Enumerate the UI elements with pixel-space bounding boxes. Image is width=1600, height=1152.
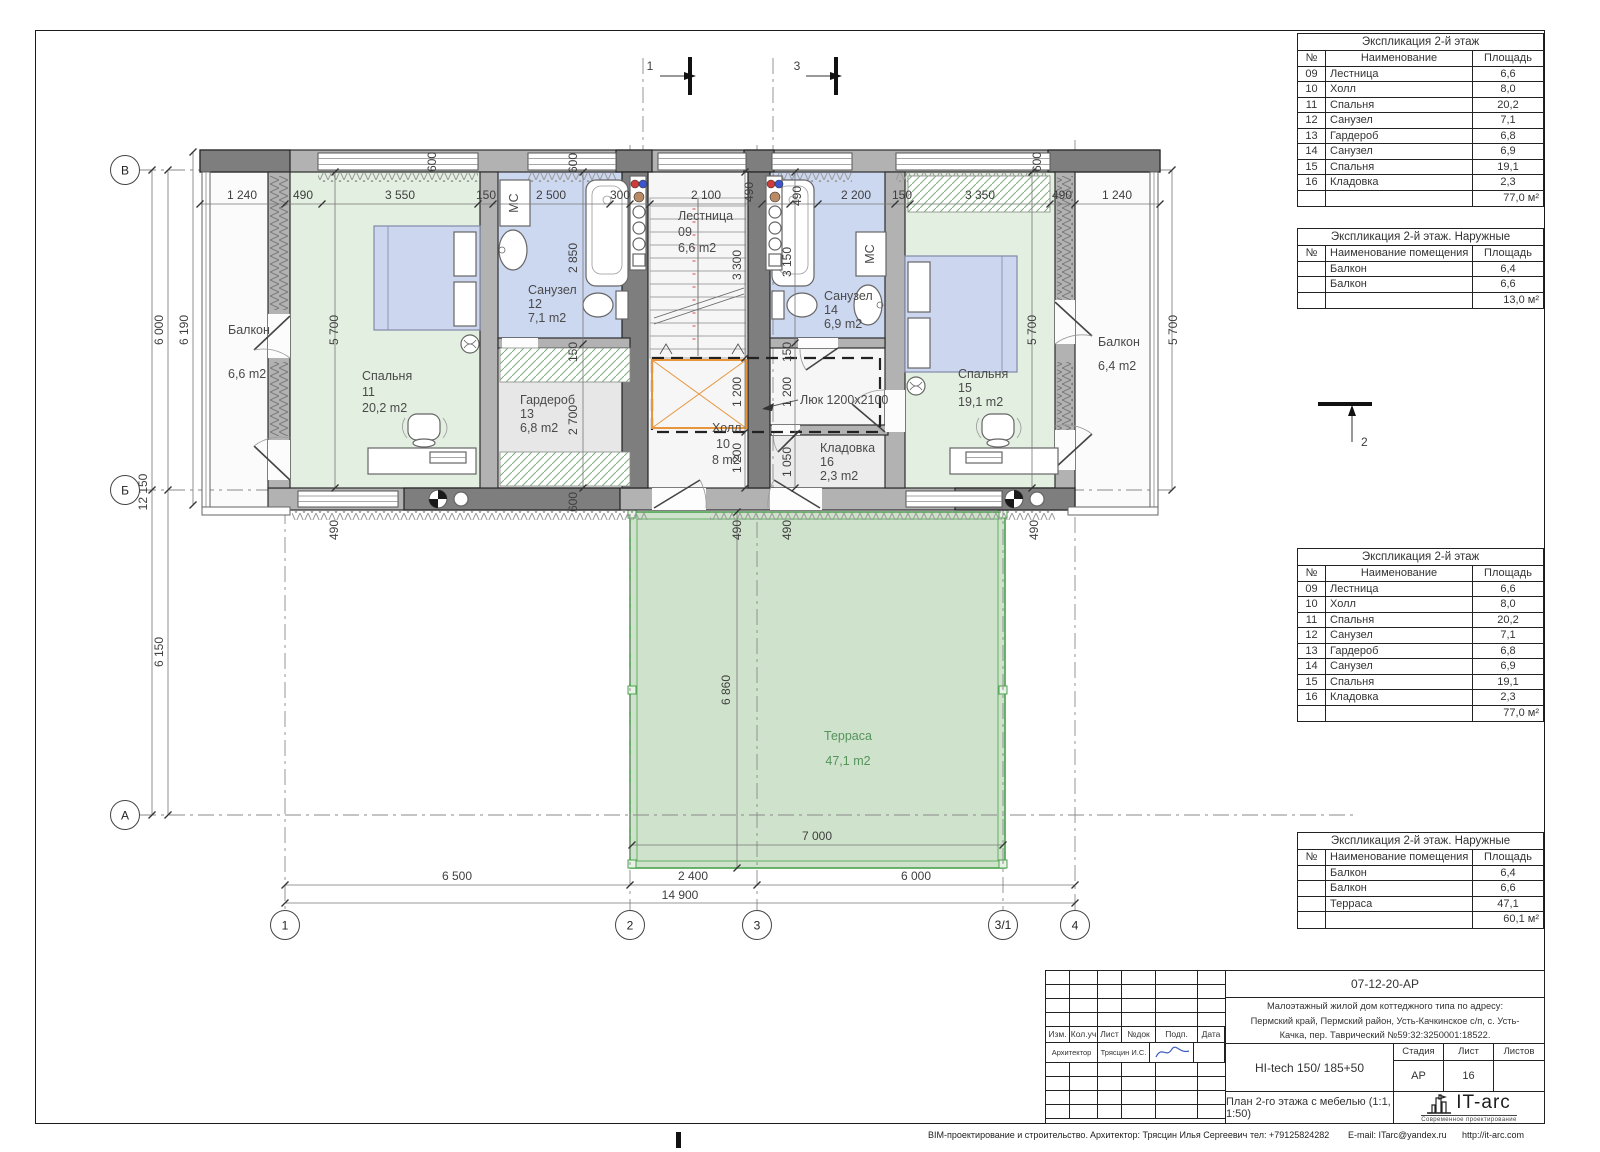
table-header: № Наименование Площадь bbox=[1298, 566, 1543, 582]
dim-label: 5 700 bbox=[1025, 315, 1039, 345]
dim-label: 1 200 bbox=[730, 443, 744, 473]
room-label: Спальня bbox=[958, 367, 1008, 381]
table-row: 09Лестница6,6 bbox=[1298, 582, 1543, 598]
dim-label: 600 bbox=[1030, 152, 1044, 172]
table-cell: Холл bbox=[1326, 82, 1473, 98]
table-cell: Санузел bbox=[1326, 113, 1473, 129]
table-title: Экспликация 2-й этаж. Наружные bbox=[1298, 229, 1543, 246]
exp-table-outdoor-top: Экспликация 2-й этаж. Наружные № Наимено… bbox=[1297, 228, 1544, 309]
table-title: Экспликация 2-й этаж bbox=[1298, 34, 1543, 51]
dim-label: 6 000 bbox=[901, 869, 931, 883]
table-cell: 6,4 bbox=[1473, 262, 1543, 278]
table-row: Балкон6,4 bbox=[1298, 866, 1543, 882]
dim-label: 490 bbox=[1027, 520, 1041, 540]
table-cell: 13 bbox=[1298, 129, 1326, 145]
table-cell bbox=[1298, 897, 1326, 913]
table-cell bbox=[1098, 1077, 1122, 1091]
room-area: 6,6 m2 bbox=[228, 367, 266, 381]
table-cell: Спальня bbox=[1326, 98, 1473, 114]
table-cell bbox=[1046, 1077, 1070, 1091]
dim-label: 1 200 bbox=[730, 377, 744, 407]
title-block: Изм. Кол.уч Лист №док Подп. Дата Архитек… bbox=[1045, 970, 1545, 1124]
table-row bbox=[1046, 985, 1225, 999]
table-cell bbox=[1298, 866, 1326, 882]
table-total: 77,0 м² bbox=[1473, 706, 1543, 722]
table-header: № Наименование помещения Площадь bbox=[1298, 850, 1543, 866]
table-cell bbox=[1156, 1091, 1198, 1105]
table-cell: 6,4 bbox=[1473, 866, 1543, 882]
room-area: 20,2 m2 bbox=[362, 401, 407, 415]
dim-label: 1 240 bbox=[227, 188, 257, 202]
logo-building-icon bbox=[1427, 1092, 1453, 1114]
table-cell bbox=[1122, 1013, 1156, 1027]
table-cell: Гардероб bbox=[1326, 644, 1473, 660]
table-cell bbox=[1122, 999, 1156, 1013]
table-cell bbox=[1198, 999, 1225, 1013]
table-cell bbox=[1122, 971, 1156, 985]
dim-label: 2 850 bbox=[566, 243, 580, 273]
table-cell bbox=[1070, 999, 1098, 1013]
table-header: № Наименование помещения Площадь bbox=[1298, 246, 1543, 262]
table-cell: 8,0 bbox=[1473, 597, 1543, 613]
dim-label: 5 700 bbox=[327, 315, 341, 345]
footer-email: E-mail: ITarc@yandex.ru bbox=[1348, 1130, 1447, 1140]
dim-label: 490 bbox=[730, 520, 744, 540]
stage-value: АР bbox=[1394, 1061, 1444, 1091]
chair-icon bbox=[408, 414, 440, 440]
table-cell bbox=[1098, 985, 1122, 999]
table-cell: 6,9 bbox=[1473, 144, 1543, 160]
dim-label: 150 bbox=[780, 342, 794, 362]
table-cell: 14 bbox=[1298, 659, 1326, 675]
revision-header: Изм. Кол.уч Лист №док Подп. Дата bbox=[1046, 1027, 1225, 1043]
table-cell bbox=[1046, 1091, 1070, 1105]
room-num: 15 bbox=[958, 381, 972, 395]
table-cell bbox=[1098, 999, 1122, 1013]
table-cell bbox=[1198, 1091, 1225, 1105]
table-title: Экспликация 2-й этаж bbox=[1298, 549, 1543, 566]
table-cell: Кладовка bbox=[1326, 175, 1473, 191]
dim-label: 1 200 bbox=[780, 377, 794, 407]
exp-table-outdoor-bottom: Экспликация 2-й этаж. Наружные № Наимено… bbox=[1297, 832, 1544, 929]
table-cell: 6,6 bbox=[1473, 277, 1543, 293]
table-row bbox=[1046, 1013, 1225, 1027]
table-row: 11Спальня20,2 bbox=[1298, 98, 1543, 114]
table-cell: 8,0 bbox=[1473, 82, 1543, 98]
table-cell bbox=[1046, 971, 1070, 985]
table-cell: 09 bbox=[1298, 582, 1326, 598]
table-cell: Санузел bbox=[1326, 144, 1473, 160]
room-label: Гардероб bbox=[520, 393, 575, 407]
table-cell bbox=[1198, 1013, 1225, 1027]
drawing-title: План 2-го этажа с мебелью (1:1, 1:50) bbox=[1226, 1092, 1394, 1123]
table-row: 15Спальня19,1 bbox=[1298, 675, 1543, 691]
table-cell bbox=[1098, 1063, 1122, 1077]
table-cell: 6,6 bbox=[1473, 881, 1543, 897]
table-cell: 12 bbox=[1298, 628, 1326, 644]
room-label: Санузел bbox=[528, 283, 577, 297]
logo-text: IT-arc bbox=[1456, 1092, 1511, 1114]
table-header: № Наименование Площадь bbox=[1298, 51, 1543, 67]
table-row bbox=[1046, 1077, 1225, 1091]
table-cell bbox=[1070, 971, 1098, 985]
room-num: 10 bbox=[716, 437, 730, 451]
axis-label: Б bbox=[121, 484, 129, 498]
table-cell: 6,6 bbox=[1473, 582, 1543, 598]
dim-label: 490 bbox=[293, 188, 313, 202]
dim-label: 3 300 bbox=[730, 250, 744, 280]
table-cell: 16 bbox=[1298, 690, 1326, 706]
table-cell bbox=[1046, 999, 1070, 1013]
table-cell bbox=[1098, 971, 1122, 985]
dim-label: 2 500 bbox=[536, 188, 566, 202]
architect-row: Архитектор Трясцин И.С. bbox=[1046, 1043, 1225, 1063]
footer-architect: Архитектор: Трясцин Илья Сергеевич bbox=[1090, 1130, 1247, 1140]
room-label: Лестница bbox=[678, 209, 733, 223]
exp-table-floor-bottom: Экспликация 2-й этаж № Наименование Площ… bbox=[1297, 548, 1544, 722]
dim-label: 14 900 bbox=[662, 888, 699, 902]
dim-label: 490 bbox=[1052, 188, 1072, 202]
table-cell bbox=[1198, 1105, 1225, 1119]
table-row: 12Санузел7,1 bbox=[1298, 628, 1543, 644]
table-row bbox=[1046, 1063, 1225, 1077]
table-row: 13Гардероб6,8 bbox=[1298, 644, 1543, 660]
table-cell bbox=[1156, 999, 1198, 1013]
table-cell: 09 bbox=[1298, 67, 1326, 83]
dim-label: 490 bbox=[790, 186, 804, 206]
toilet-icon bbox=[772, 291, 784, 319]
room-area: 2,3 m2 bbox=[820, 469, 858, 483]
dim-label: 3 550 bbox=[385, 188, 415, 202]
table-cell bbox=[1156, 985, 1198, 999]
table-cell bbox=[1122, 1077, 1156, 1091]
stage-header: Стадия Лист Листов bbox=[1394, 1044, 1544, 1061]
table-cell: 2,3 bbox=[1473, 690, 1543, 706]
axis-label: 3 bbox=[754, 919, 761, 933]
room-area: 6,4 m2 bbox=[1098, 359, 1136, 373]
logo-subtitle: Современное проектирование bbox=[1421, 1115, 1517, 1123]
hatch-label: Люк 1200х2100 bbox=[800, 393, 888, 407]
table-title: Экспликация 2-й этаж. Наружные bbox=[1298, 833, 1543, 850]
table-cell bbox=[1122, 985, 1156, 999]
table-cell: Лестница bbox=[1326, 67, 1473, 83]
room-area: 6,6 m2 bbox=[678, 241, 716, 255]
table-cell: 20,2 bbox=[1473, 613, 1543, 629]
table-cell bbox=[1070, 1013, 1098, 1027]
axis-label: 2 bbox=[627, 919, 634, 933]
table-cell bbox=[1122, 1105, 1156, 1119]
dim-label: 150 bbox=[476, 188, 496, 202]
table-cell: Холл bbox=[1326, 597, 1473, 613]
table-total-row: 77,0 м² bbox=[1298, 191, 1543, 207]
table-row: 12Санузел7,1 bbox=[1298, 113, 1543, 129]
table-row bbox=[1046, 999, 1225, 1013]
table-cell: 10 bbox=[1298, 597, 1326, 613]
project-address: Малоэтажный жилой дом коттеджного типа п… bbox=[1226, 998, 1544, 1044]
exp-table-floor-top: Экспликация 2-й этаж № Наименование Площ… bbox=[1297, 33, 1544, 207]
table-cell: 15 bbox=[1298, 675, 1326, 691]
dim-label: 6 000 bbox=[152, 315, 166, 345]
table-cell bbox=[1156, 1105, 1198, 1119]
section-label: 2 bbox=[1361, 435, 1368, 449]
table-cell: 14 bbox=[1298, 144, 1326, 160]
room-label: Кладовка bbox=[820, 441, 875, 455]
dim-label: 2 200 bbox=[841, 188, 871, 202]
table-cell: 47,1 bbox=[1473, 897, 1543, 913]
table-cell: 15 bbox=[1298, 160, 1326, 176]
table-cell: Балкон bbox=[1326, 262, 1473, 278]
dim-label: 6 860 bbox=[719, 675, 733, 705]
table-row: 15Спальня19,1 bbox=[1298, 160, 1543, 176]
table-cell: Спальня bbox=[1326, 675, 1473, 691]
revision-grid: Изм. Кол.уч Лист №док Подп. Дата Архитек… bbox=[1046, 971, 1226, 1123]
room-label: Холл bbox=[712, 421, 741, 435]
table-cell: Кладовка bbox=[1326, 690, 1473, 706]
washing-machine-label: МС bbox=[507, 193, 521, 212]
axis-label: В bbox=[121, 164, 129, 178]
room-num: 16 bbox=[820, 455, 834, 469]
terrace: Терраса 47,1 m2 bbox=[628, 510, 1007, 868]
table-row: 14Санузел6,9 bbox=[1298, 659, 1543, 675]
table-cell bbox=[1070, 1105, 1098, 1119]
table-row bbox=[1046, 1105, 1225, 1119]
terrace-label: Терраса bbox=[824, 729, 872, 743]
table-cell: 6,8 bbox=[1473, 129, 1543, 145]
table-total-row: 60,1 м² bbox=[1298, 912, 1543, 928]
dim-label: 6 190 bbox=[177, 315, 191, 345]
table-cell: 2,3 bbox=[1473, 175, 1543, 191]
axis-label: А bbox=[121, 809, 129, 823]
axis-label: 3/1 bbox=[995, 918, 1012, 932]
table-cell bbox=[1046, 985, 1070, 999]
room-area: 6,8 m2 bbox=[520, 421, 558, 435]
table-cell bbox=[1046, 1013, 1070, 1027]
room-label: Балкон bbox=[1098, 335, 1140, 349]
dim-label: 3 150 bbox=[780, 247, 794, 277]
room-area: 19,1 m2 bbox=[958, 395, 1003, 409]
table-row: 11Спальня20,2 bbox=[1298, 613, 1543, 629]
table-row: 16Кладовка2,3 bbox=[1298, 690, 1543, 706]
table-cell: 19,1 bbox=[1473, 160, 1543, 176]
table-cell bbox=[1156, 1013, 1198, 1027]
toilet-icon bbox=[616, 291, 628, 319]
room-area: 6,9 m2 bbox=[824, 317, 862, 331]
table-cell: 6,9 bbox=[1473, 659, 1543, 675]
dim-label: 490 bbox=[742, 182, 756, 202]
table-cell: Гардероб bbox=[1326, 129, 1473, 145]
table-cell: Лестница bbox=[1326, 582, 1473, 598]
table-cell: Терраса bbox=[1326, 897, 1473, 913]
table-cell bbox=[1070, 1077, 1098, 1091]
table-cell bbox=[1070, 1091, 1098, 1105]
table-cell: Санузел bbox=[1326, 659, 1473, 675]
room-label: Балкон bbox=[228, 323, 270, 337]
sheet-number: 16 bbox=[1444, 1061, 1494, 1091]
table-cell: 7,1 bbox=[1473, 113, 1543, 129]
room-num: 11 bbox=[362, 385, 375, 399]
table-cell bbox=[1198, 971, 1225, 985]
section-label: 3 bbox=[794, 59, 801, 73]
dim-label: 600 bbox=[566, 153, 580, 173]
table-cell bbox=[1098, 1013, 1122, 1027]
room-num: 14 bbox=[824, 303, 838, 317]
table-cell: 20,2 bbox=[1473, 98, 1543, 114]
table-cell bbox=[1098, 1105, 1122, 1119]
dim-label: 7 000 bbox=[802, 829, 832, 843]
table-cell: 11 bbox=[1298, 613, 1326, 629]
dim-label: 150 bbox=[892, 188, 912, 202]
table-cell: Спальня bbox=[1326, 160, 1473, 176]
dim-label: 150 bbox=[566, 342, 580, 362]
logo: IT-arc Современное проектирование bbox=[1394, 1092, 1544, 1123]
chair-icon bbox=[982, 414, 1014, 440]
table-row: 16Кладовка2,3 bbox=[1298, 175, 1543, 191]
dim-label: 600 bbox=[425, 152, 439, 172]
dim-label: 2 100 bbox=[691, 188, 721, 202]
dim-label: 5 700 bbox=[1166, 315, 1180, 345]
dim-label: 1 050 bbox=[780, 447, 794, 477]
dim-label: 6 500 bbox=[442, 869, 472, 883]
table-total-row: 13,0 м² bbox=[1298, 293, 1543, 309]
dim-label: 3 350 bbox=[965, 188, 995, 202]
table-cell bbox=[1198, 1063, 1225, 1077]
table-cell bbox=[1156, 1063, 1198, 1077]
table-row: 10Холл8,0 bbox=[1298, 597, 1543, 613]
table-cell bbox=[1198, 985, 1225, 999]
axis-label: 1 bbox=[282, 919, 289, 933]
sink-icon bbox=[499, 230, 527, 270]
room-num: 12 bbox=[528, 297, 542, 311]
table-cell bbox=[1298, 881, 1326, 897]
table-row: 09Лестница6,6 bbox=[1298, 67, 1543, 83]
table-cell bbox=[1070, 985, 1098, 999]
table-row: Балкон6,6 bbox=[1298, 881, 1543, 897]
table-cell: Санузел bbox=[1326, 628, 1473, 644]
table-cell bbox=[1298, 262, 1326, 278]
table-cell bbox=[1122, 1091, 1156, 1105]
table-row: 14Санузел6,9 bbox=[1298, 144, 1543, 160]
table-cell: 6,8 bbox=[1473, 644, 1543, 660]
dim-label: 490 bbox=[780, 520, 794, 540]
table-cell: Балкон bbox=[1326, 277, 1473, 293]
table-row: Балкон6,6 bbox=[1298, 277, 1543, 293]
table-cell: 7,1 bbox=[1473, 628, 1543, 644]
section-label: 1 bbox=[647, 59, 654, 73]
room-area: 7,1 m2 bbox=[528, 311, 566, 325]
dim-label: 2 700 bbox=[566, 405, 580, 435]
table-cell bbox=[1156, 971, 1198, 985]
table-cell bbox=[1070, 1063, 1098, 1077]
terrace-area: 47,1 m2 bbox=[825, 754, 870, 768]
table-cell: Балкон bbox=[1326, 866, 1473, 882]
dim-label: 6 150 bbox=[152, 637, 166, 667]
table-row: 13Гардероб6,8 bbox=[1298, 129, 1543, 145]
table-cell: 13 bbox=[1298, 644, 1326, 660]
washing-machine-label: МС bbox=[863, 244, 877, 263]
room-label: Санузел bbox=[824, 289, 873, 303]
dim-label: 600 bbox=[566, 492, 580, 512]
table-total: 77,0 м² bbox=[1473, 191, 1543, 207]
table-cell bbox=[1298, 277, 1326, 293]
dim-label: 2 400 bbox=[678, 869, 708, 883]
table-row: Балкон6,4 bbox=[1298, 262, 1543, 278]
table-cell: 11 bbox=[1298, 98, 1326, 114]
table-cell: 12 bbox=[1298, 113, 1326, 129]
footer-company: BIM-проектирование и строительство. bbox=[928, 1130, 1088, 1140]
table-row bbox=[1046, 1091, 1225, 1105]
axis-label: 4 bbox=[1072, 919, 1079, 933]
project-name: HI-tech 150/ 185+50 bbox=[1226, 1044, 1394, 1091]
dim-label: 490 bbox=[327, 520, 341, 540]
table-cell: 19,1 bbox=[1473, 675, 1543, 691]
signature bbox=[1150, 1043, 1194, 1063]
table-cell: 10 bbox=[1298, 82, 1326, 98]
table-cell bbox=[1046, 1063, 1070, 1077]
architect-role: Архитектор bbox=[1046, 1043, 1098, 1063]
table-row: Терраса47,1 bbox=[1298, 897, 1543, 913]
table-row bbox=[1046, 971, 1225, 985]
table-cell: Балкон bbox=[1326, 881, 1473, 897]
table-row: 10Холл8,0 bbox=[1298, 82, 1543, 98]
footer-site: http://it-arc.com bbox=[1462, 1130, 1524, 1140]
table-total: 60,1 м² bbox=[1473, 912, 1543, 928]
table-cell: Спальня bbox=[1326, 613, 1473, 629]
architect-name: Трясцин И.С. bbox=[1098, 1043, 1150, 1063]
stage-values: АР 16 bbox=[1394, 1061, 1544, 1091]
dim-label: 1 240 bbox=[1102, 188, 1132, 202]
room-num: 13 bbox=[520, 407, 534, 421]
room-num: 09 bbox=[678, 225, 692, 239]
table-cell: 16 bbox=[1298, 175, 1326, 191]
footer-phone: тел: +79125824282 bbox=[1250, 1130, 1329, 1140]
table-total-row: 77,0 м² bbox=[1298, 706, 1543, 722]
sheets-total bbox=[1494, 1061, 1544, 1091]
table-cell bbox=[1198, 1077, 1225, 1091]
table-total: 13,0 м² bbox=[1473, 293, 1543, 309]
table-cell: 6,6 bbox=[1473, 67, 1543, 83]
signature-icon bbox=[1152, 1043, 1192, 1061]
table-cell bbox=[1098, 1091, 1122, 1105]
room-label: Спальня bbox=[362, 369, 412, 383]
section-tick bbox=[676, 1132, 681, 1148]
dim-label: 300 bbox=[610, 188, 630, 202]
table-cell bbox=[1122, 1063, 1156, 1077]
table-cell bbox=[1046, 1105, 1070, 1119]
doc-number: 07-12-20-АР bbox=[1226, 971, 1544, 998]
table-cell bbox=[1156, 1077, 1198, 1091]
